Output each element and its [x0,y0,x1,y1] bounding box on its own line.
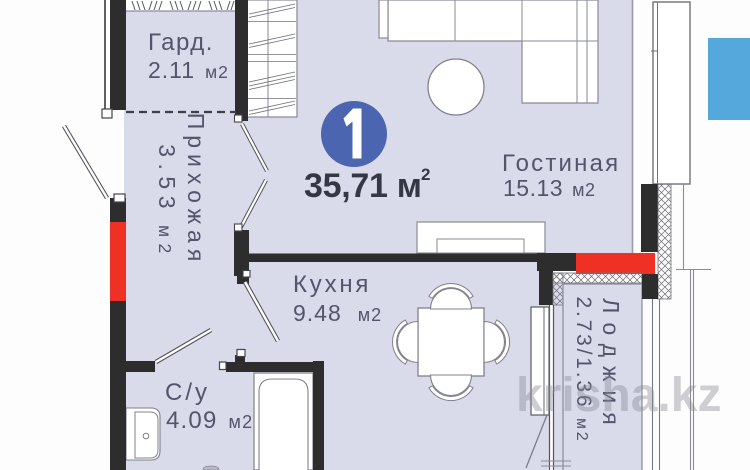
svg-text:Гард.: Гард. [148,29,214,56]
svg-text:krisha.kz: krisha.kz [516,369,721,422]
svg-text:4.09м2: 4.09м2 [166,407,253,434]
svg-text:2: 2 [421,165,430,184]
svg-text:Прихожая: Прихожая [183,113,209,268]
svg-text:Кухня: Кухня [293,271,371,298]
svg-text:Гостиная: Гостиная [502,150,620,177]
svg-text:35,71 м: 35,71 м [304,167,422,205]
svg-text:С/у: С/у [165,379,210,406]
